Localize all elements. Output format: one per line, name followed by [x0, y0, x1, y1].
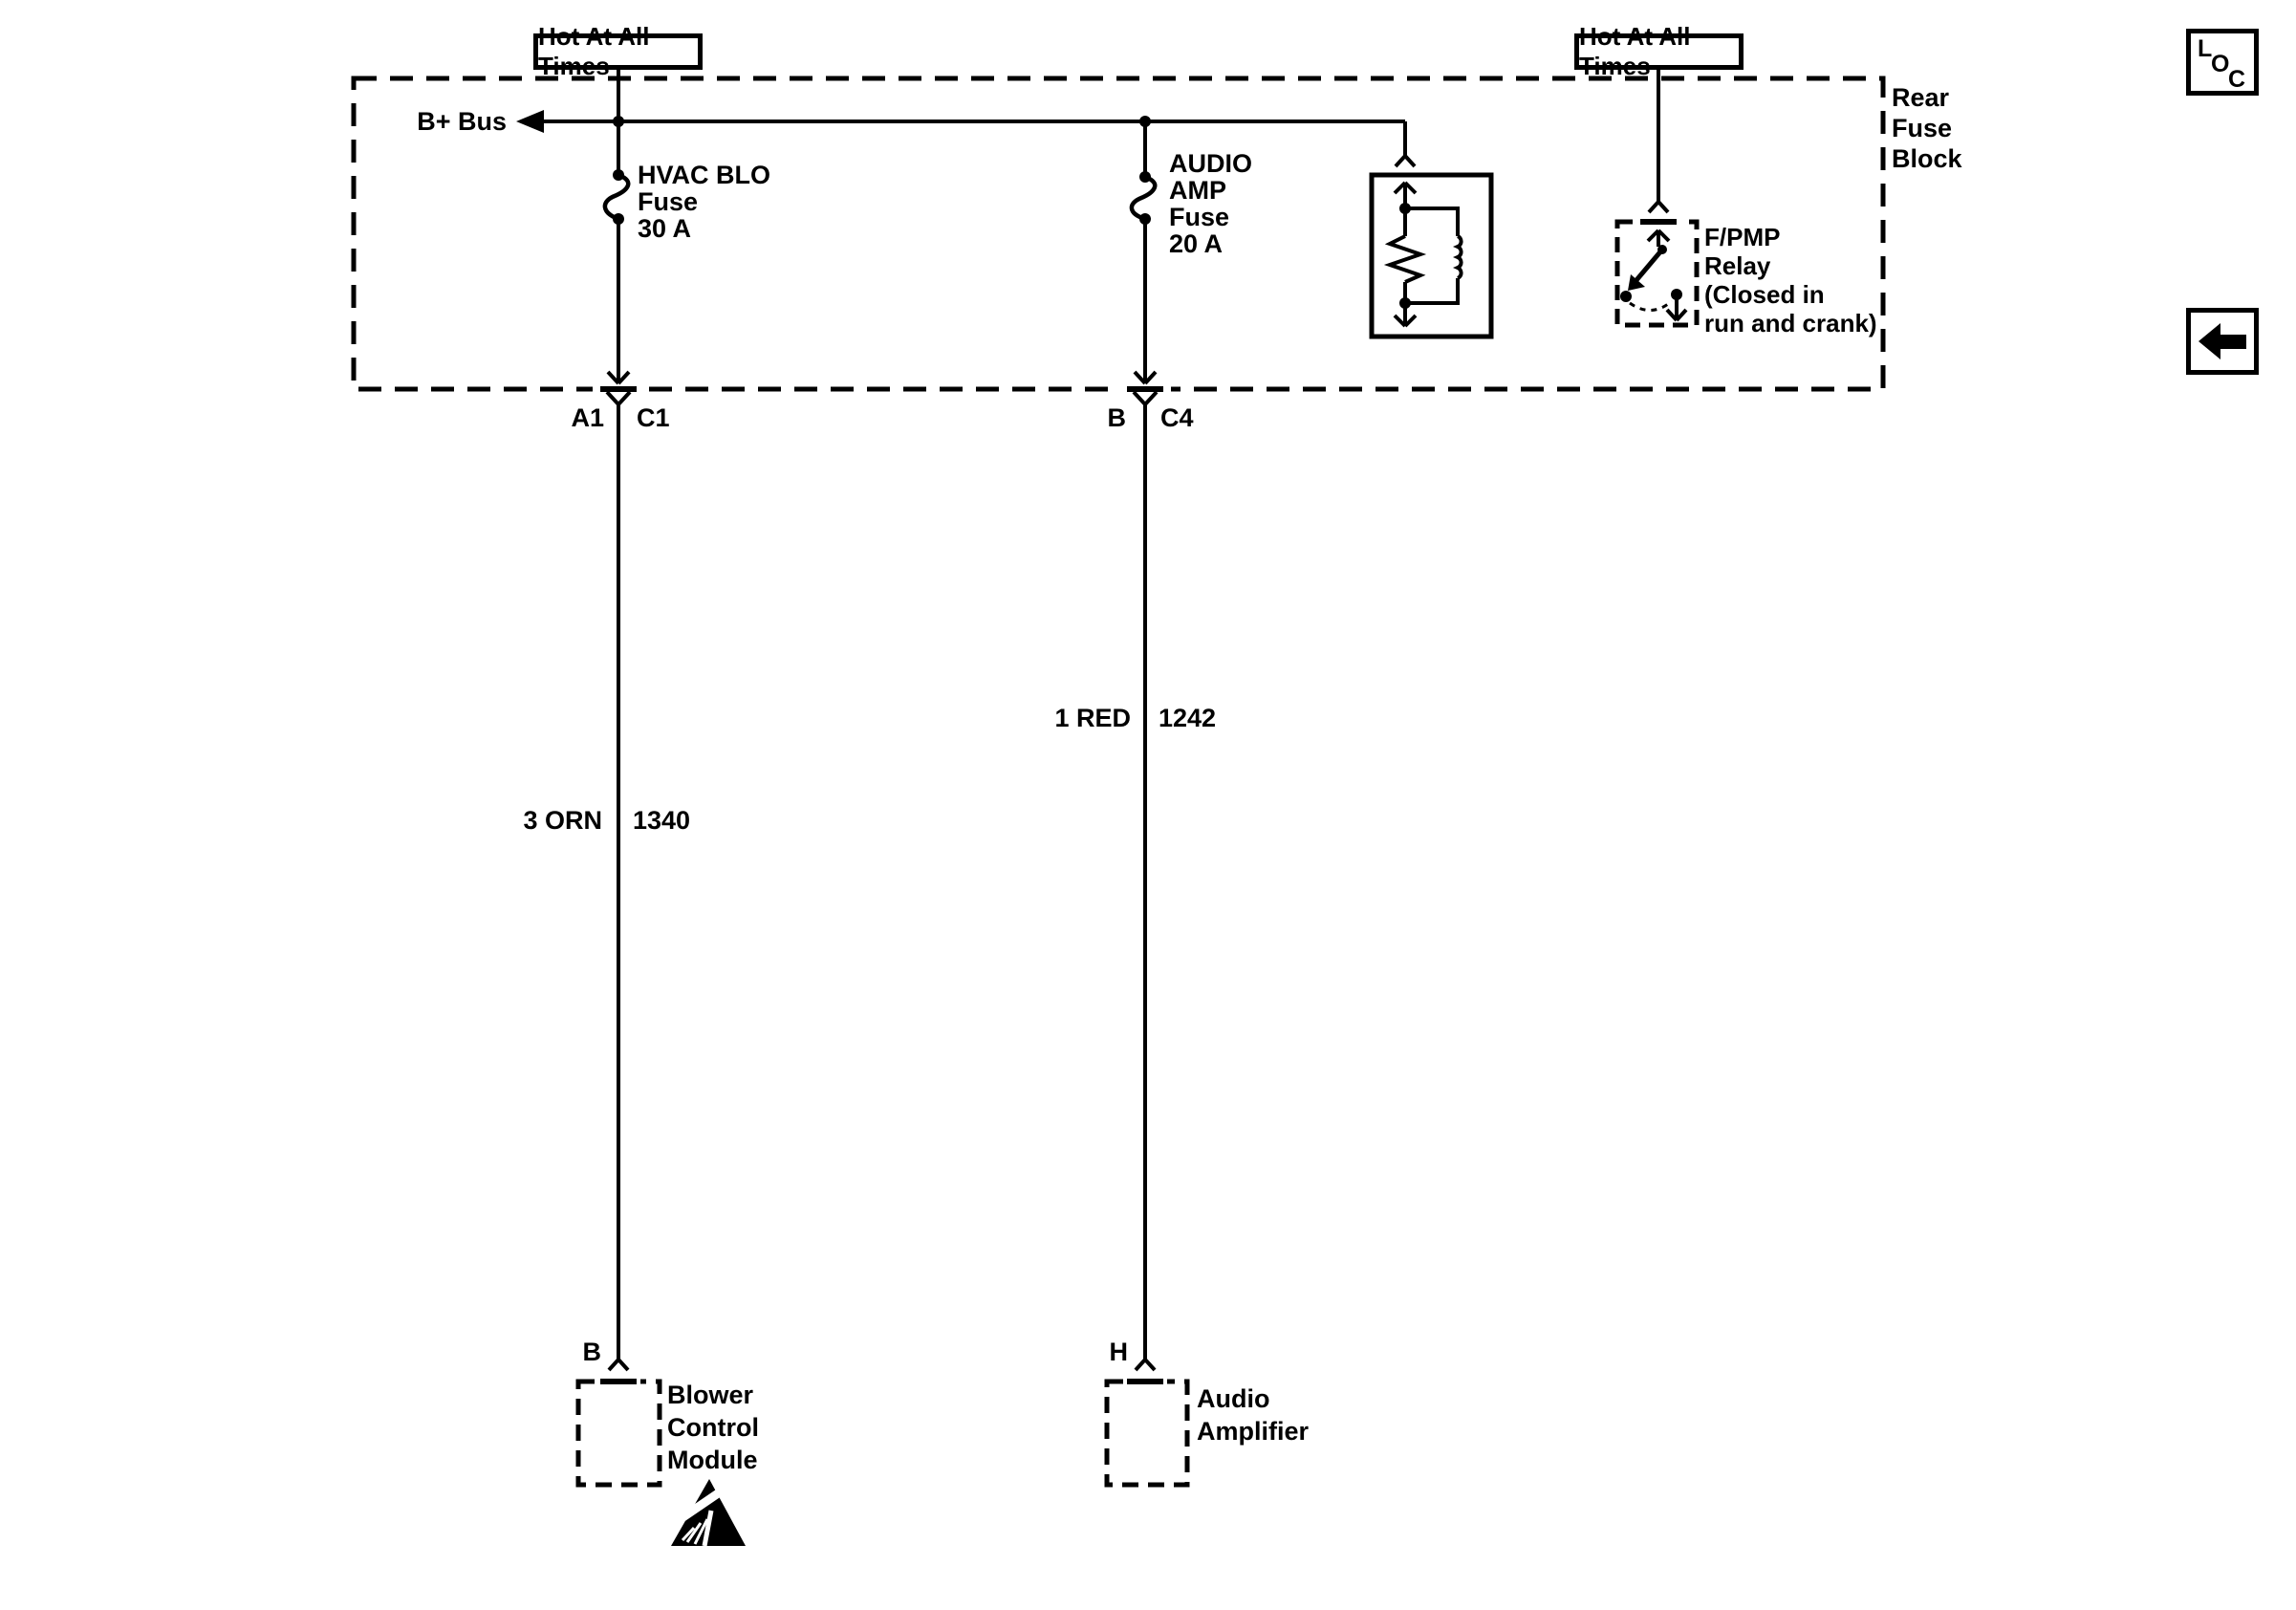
audio-amplifier-label: Audio Amplifier	[1197, 1382, 1309, 1447]
connector-left-name-label: C1	[637, 404, 670, 431]
hvac-fuse-label-line: HVAC BLO	[638, 162, 770, 188]
module-left-name-line: Control	[667, 1411, 759, 1444]
module-right-name-line: Amplifier	[1197, 1415, 1309, 1447]
audio-fuse-label-line: 20 A	[1169, 230, 1252, 257]
wire-right-circuit-label: 1242	[1159, 705, 1216, 731]
back-button[interactable]	[2186, 308, 2259, 375]
hvac-blo-fuse-label: HVAC BLO Fuse 30 A	[638, 162, 770, 242]
hot-at-all-times-right-box: Hot At All Times	[1574, 33, 1744, 70]
rear-fuse-block-title-line: Block	[1892, 143, 1962, 174]
loc-letter-c: C	[2228, 68, 2245, 92]
hot-at-all-times-right-label: Hot At All Times	[1579, 22, 1739, 81]
hvac-fuse-label-line: Fuse	[638, 188, 770, 215]
hvac-blo-fuse-symbol	[605, 169, 628, 225]
loc-letter-o: O	[2211, 53, 2229, 76]
audio-fuse-label-line: AUDIO	[1169, 150, 1252, 177]
schematic-linework	[0, 0, 2296, 1610]
connector-right-name-label: C4	[1160, 404, 1194, 431]
fpmp-relay-symbol	[1617, 202, 1697, 325]
relay-label-line: Relay	[1704, 251, 1877, 280]
module-left-pin-label: B	[546, 1338, 601, 1365]
audio-fuse-label-line: Fuse	[1169, 204, 1252, 230]
audio-amplifier-box	[1107, 1360, 1187, 1485]
audio-fuse-label-line: AMP	[1169, 177, 1252, 204]
esd-warning-icon	[663, 1479, 746, 1546]
wire-left-circuit-label: 1340	[633, 807, 690, 834]
b-plus-bus-label: B+ Bus	[401, 108, 507, 135]
hvac-fuse-label-line: 30 A	[638, 215, 770, 242]
back-arrow-icon	[2191, 313, 2254, 370]
b-plus-bus-arrow	[516, 110, 544, 133]
blower-control-module-box	[578, 1360, 660, 1485]
connector-right-pin-label: B	[1051, 404, 1126, 431]
relay-label-line: (Closed in	[1704, 280, 1877, 309]
loc-component-locator-button[interactable]: L O C	[2186, 29, 2259, 96]
audio-amp-fuse-symbol	[1132, 171, 1155, 225]
blower-control-module-label: Blower Control Module	[667, 1379, 759, 1476]
wire-right-color-label: 1 RED	[1016, 705, 1131, 731]
module-left-name-line: Blower	[667, 1379, 759, 1411]
wire-left-color-label: 3 ORN	[487, 807, 602, 834]
fpmp-relay-label: F/PMP Relay (Closed in run and crank)	[1704, 223, 1877, 337]
module-right-name-line: Audio	[1197, 1382, 1309, 1415]
module-right-pin-label: H	[1072, 1338, 1128, 1365]
loc-letter-l: L	[2198, 37, 2212, 61]
relay-label-line: F/PMP	[1704, 223, 1877, 251]
relay-label-line: run and crank)	[1704, 309, 1877, 337]
module-left-name-line: Module	[667, 1444, 759, 1476]
hot-at-all-times-left-label: Hot At All Times	[538, 22, 698, 81]
rear-fuse-block-title: Rear Fuse Block	[1892, 82, 1962, 174]
rear-fuse-block-title-line: Rear	[1892, 82, 1962, 113]
hot-at-all-times-left-box: Hot At All Times	[533, 33, 703, 70]
relay-coil-box	[1372, 156, 1491, 337]
rear-fuse-block-title-line: Fuse	[1892, 113, 1962, 143]
wiring-diagram-page: Hot At All Times Hot At All Times Rear F…	[0, 0, 2296, 1610]
connector-left-pin-label: A1	[530, 404, 604, 431]
audio-amp-fuse-label: AUDIO AMP Fuse 20 A	[1169, 150, 1252, 257]
